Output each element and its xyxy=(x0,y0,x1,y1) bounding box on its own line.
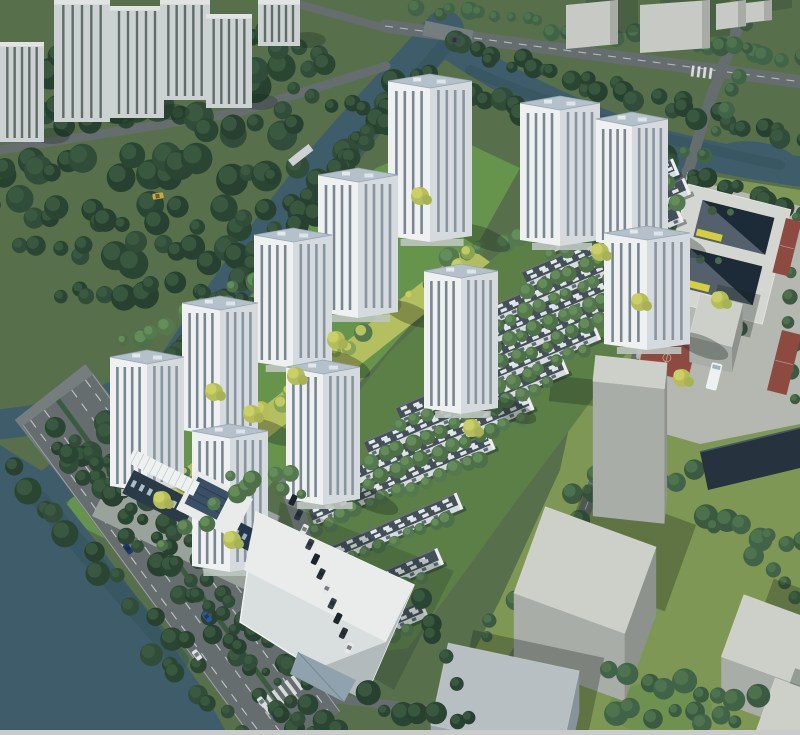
tree-highlight xyxy=(719,103,729,113)
tree-highlight xyxy=(483,615,491,623)
tree-highlight xyxy=(26,157,43,174)
roof-structure xyxy=(329,366,338,370)
tree-highlight xyxy=(462,246,470,254)
tree-highlight xyxy=(302,62,312,72)
tree-highlight xyxy=(269,468,278,477)
tower-windows xyxy=(551,113,554,238)
tree-highlight xyxy=(335,508,345,518)
context-tower-windows xyxy=(175,5,177,96)
tree-highlight xyxy=(379,706,386,713)
tree-highlight xyxy=(27,237,39,249)
tree-highlight xyxy=(229,625,236,632)
tree-highlight xyxy=(578,282,585,289)
tower-windows xyxy=(680,242,683,340)
tree-highlight xyxy=(680,147,686,153)
tree-highlight xyxy=(621,699,633,711)
tree-highlight xyxy=(219,166,237,184)
tower-windows xyxy=(341,185,344,310)
tower-windows xyxy=(527,113,530,238)
yellow-tree-cluster xyxy=(254,413,264,423)
tree-highlight xyxy=(355,325,366,336)
tower-windows xyxy=(575,112,578,236)
tree-highlight xyxy=(498,419,505,426)
yellow-tree-cluster xyxy=(234,539,244,549)
yellow-tree-cluster xyxy=(722,299,732,309)
tower-windows xyxy=(116,367,119,484)
tree-highlight xyxy=(435,426,443,434)
tower-windows xyxy=(475,280,478,404)
tower-windows xyxy=(624,129,627,240)
roof-structure xyxy=(544,100,552,104)
tree-highlight xyxy=(579,345,587,353)
tower-windows xyxy=(365,184,368,308)
context-tower-roof xyxy=(258,0,300,5)
tree-highlight xyxy=(757,120,768,131)
tower-windows xyxy=(131,367,134,484)
roof-structure xyxy=(618,116,626,120)
tree-highlight xyxy=(775,54,783,62)
tower-windows xyxy=(412,91,415,234)
tree-highlight xyxy=(299,696,311,708)
tree-highlight xyxy=(527,321,536,330)
roof-structure xyxy=(364,174,373,178)
tower-windows xyxy=(616,129,619,240)
context-tower-windows xyxy=(184,5,186,96)
tower-windows xyxy=(602,129,605,240)
roof-structure xyxy=(308,364,316,368)
roof-structure xyxy=(638,118,647,122)
tree-highlight xyxy=(126,503,134,511)
yellow-tree-highlight xyxy=(224,532,235,543)
tower-windows xyxy=(404,91,407,234)
tree-highlight xyxy=(666,104,675,113)
tree-highlight xyxy=(473,6,480,13)
tree-highlight xyxy=(783,290,792,299)
tree-highlight xyxy=(138,162,156,180)
tree-highlight xyxy=(113,286,128,301)
tree-highlight xyxy=(717,511,730,524)
tower-windows xyxy=(175,366,178,482)
tower-windows xyxy=(672,242,675,340)
yellow-tree-cluster xyxy=(602,251,612,261)
tree-highlight xyxy=(103,457,110,464)
tower-windows xyxy=(124,367,127,484)
tree-highlight xyxy=(314,711,327,724)
tower-face-left xyxy=(182,303,220,436)
roof-structure xyxy=(132,354,140,358)
tree-highlight xyxy=(791,395,797,401)
tower-windows xyxy=(226,312,229,426)
tower-windows xyxy=(438,281,441,406)
tree-highlight xyxy=(477,93,487,103)
tree-highlight xyxy=(380,446,390,456)
tower-windows xyxy=(645,128,648,238)
tower-windows xyxy=(437,90,440,232)
tree-highlight xyxy=(200,696,210,706)
tower-windows xyxy=(660,128,663,238)
tree-highlight xyxy=(712,127,718,133)
context-tower-windows xyxy=(28,47,30,138)
tree-highlight xyxy=(390,537,397,544)
tree-highlight xyxy=(162,629,176,643)
tower-windows xyxy=(489,280,492,404)
tree-highlight xyxy=(694,715,705,726)
tower-windows xyxy=(307,244,310,358)
roof-structure xyxy=(566,102,575,106)
yellow-tree-highlight xyxy=(244,406,255,417)
tree-highlight xyxy=(549,293,556,300)
roof-structure xyxy=(630,230,638,234)
tree-highlight xyxy=(618,664,631,677)
tree-highlight xyxy=(507,62,514,69)
tree-highlight xyxy=(262,668,267,673)
tree-highlight xyxy=(98,423,111,436)
tree-highlight xyxy=(668,474,679,485)
tree-highlight xyxy=(525,60,537,72)
tree-highlight xyxy=(686,461,698,473)
tree-highlight xyxy=(652,90,661,99)
tree-highlight xyxy=(301,189,312,200)
yellow-tree-cluster xyxy=(298,375,308,385)
tree-highlight xyxy=(551,270,560,279)
tree-highlight xyxy=(645,710,656,721)
tree-highlight xyxy=(463,712,471,720)
tree-highlight xyxy=(559,310,567,318)
tree-highlight xyxy=(315,55,328,68)
tree-highlight xyxy=(390,442,399,451)
tree-highlight xyxy=(120,251,138,269)
tree-highlight xyxy=(171,587,182,598)
tree-highlight xyxy=(589,83,601,95)
tower-face-left xyxy=(254,235,293,368)
tower-windows xyxy=(609,129,612,240)
tree-highlight xyxy=(485,424,494,433)
yellow-tree-cluster xyxy=(338,339,348,349)
tower-windows xyxy=(654,242,657,340)
tower-windows xyxy=(611,243,614,342)
tree-highlight xyxy=(675,99,686,110)
tower-windows xyxy=(268,245,271,360)
tree-highlight xyxy=(588,277,595,284)
tree-highlight xyxy=(152,532,159,539)
tree-highlight xyxy=(274,707,284,717)
tree-highlight xyxy=(203,601,211,609)
tree-highlight xyxy=(351,132,359,140)
tree-highlight xyxy=(409,1,419,11)
tree-highlight xyxy=(359,136,369,146)
car-glass xyxy=(452,37,457,42)
tree-highlight xyxy=(538,279,547,288)
tree-highlight xyxy=(361,125,370,134)
context-tower-windows xyxy=(118,11,120,114)
tree-highlight xyxy=(60,445,72,457)
roof-structure xyxy=(153,356,162,360)
tree-highlight xyxy=(70,146,87,163)
tree-highlight xyxy=(185,575,193,583)
tree-highlight xyxy=(406,483,414,491)
yellow-tree-highlight xyxy=(464,420,475,431)
tree-highlight xyxy=(517,331,524,338)
tree-highlight xyxy=(735,122,745,132)
tree-highlight xyxy=(530,385,537,392)
context-tower-windows xyxy=(192,5,194,96)
yellow-tree-highlight xyxy=(712,292,723,303)
tree-highlight xyxy=(583,298,592,307)
context-tower-windows xyxy=(278,5,280,42)
yellow-tree-cluster xyxy=(216,391,226,401)
roof-structure xyxy=(215,428,223,432)
tree-highlight xyxy=(156,236,167,247)
context-tower-windows xyxy=(200,5,202,96)
context-tower-roof xyxy=(0,42,44,47)
tree-highlight xyxy=(364,479,371,486)
tree-highlight xyxy=(569,306,578,315)
tree-highlight xyxy=(440,249,452,261)
tree-highlight xyxy=(726,84,734,92)
tree-highlight xyxy=(248,116,258,126)
tree-highlight xyxy=(90,457,99,466)
tree-highlight xyxy=(440,650,448,658)
tree-highlight xyxy=(142,645,155,658)
tree-highlight xyxy=(771,129,783,141)
context-tower-windows xyxy=(235,19,237,104)
context-tower-windows xyxy=(243,19,245,104)
tower-windows xyxy=(420,91,423,234)
tree-highlight xyxy=(543,342,550,349)
context-tower-windows xyxy=(154,11,156,114)
tree-highlight xyxy=(236,211,246,221)
tree-highlight xyxy=(462,457,471,466)
yellow-tree-cluster xyxy=(164,499,174,509)
tree-highlight xyxy=(512,350,521,359)
tree-highlight xyxy=(743,43,750,50)
tower-windows xyxy=(454,90,457,232)
tower-windows xyxy=(591,112,594,236)
tree-highlight xyxy=(440,513,450,523)
tower-windows xyxy=(445,281,448,406)
tree-highlight xyxy=(732,70,741,79)
tower-windows xyxy=(300,377,303,497)
context-tower-roof xyxy=(110,6,164,11)
tree-highlight xyxy=(268,223,277,232)
tower-windows xyxy=(535,113,538,238)
tree-highlight xyxy=(581,72,590,81)
tree-highlight xyxy=(190,589,199,598)
tower-face-right xyxy=(560,103,600,246)
tree-highlight xyxy=(561,289,568,296)
roof-structure xyxy=(226,302,235,306)
tree-highlight xyxy=(563,72,575,84)
tower-face-right xyxy=(647,233,690,350)
tree-highlight xyxy=(178,520,187,529)
tree-highlight xyxy=(190,686,201,697)
tree-highlight xyxy=(732,181,740,189)
tower-windows xyxy=(300,244,303,358)
roof-structure xyxy=(446,268,454,272)
tree-highlight xyxy=(414,452,424,462)
tree-highlight xyxy=(179,632,189,642)
tree-highlight xyxy=(97,287,107,297)
tree-highlight xyxy=(244,472,255,483)
context-tower-roof xyxy=(160,0,210,5)
tree-highlight xyxy=(306,90,315,99)
context-tower-windows xyxy=(90,5,92,118)
tree-highlight xyxy=(562,267,571,276)
tree-highlight xyxy=(518,304,527,313)
tree-highlight xyxy=(46,418,58,430)
tree-highlight xyxy=(614,83,626,95)
context-tower-windows xyxy=(220,19,222,104)
tree-highlight xyxy=(222,706,230,714)
tree-highlight xyxy=(724,690,737,703)
tree-highlight xyxy=(711,689,720,698)
tree-highlight xyxy=(526,348,533,355)
tree-highlight xyxy=(166,664,177,675)
tree-highlight xyxy=(460,437,468,445)
tree-highlight xyxy=(783,317,790,324)
context-tower-roof xyxy=(54,0,110,5)
tree-highlight xyxy=(483,54,492,63)
tree-highlight xyxy=(226,245,241,260)
tree-highlight xyxy=(699,150,705,156)
tree-highlight xyxy=(297,490,303,496)
context-slab-side xyxy=(610,0,618,45)
roof-structure xyxy=(205,300,213,304)
tree-highlight xyxy=(563,348,570,355)
tree-highlight xyxy=(593,313,603,323)
tower-windows xyxy=(196,313,199,428)
tower-face-right xyxy=(461,271,498,414)
tree-highlight xyxy=(596,295,605,304)
tree-highlight xyxy=(232,640,241,649)
tree-highlight xyxy=(407,436,417,446)
image-bottom-edge xyxy=(0,730,800,735)
tree-highlight xyxy=(84,447,93,456)
tower-windows xyxy=(663,242,666,340)
tower-windows xyxy=(276,245,279,360)
roof-structure xyxy=(236,430,245,434)
tower-windows xyxy=(452,281,455,406)
context-slab-side xyxy=(702,0,710,49)
tower-windows xyxy=(234,312,237,426)
tree-highlight xyxy=(288,83,295,90)
context-tower-windows xyxy=(167,5,169,96)
tree-highlight xyxy=(421,431,430,440)
tower-windows xyxy=(373,184,376,308)
tower-windows xyxy=(637,243,640,342)
tree-highlight xyxy=(601,662,611,672)
tree-highlight xyxy=(364,455,373,464)
context-tower-roof xyxy=(206,14,252,19)
context-tower-windows xyxy=(145,11,147,114)
tree-highlight xyxy=(490,12,496,18)
tower-face-left xyxy=(596,119,632,248)
car-glass xyxy=(155,194,160,199)
tree-highlight xyxy=(767,563,776,572)
tower-windows xyxy=(307,377,310,497)
tree-highlight xyxy=(451,678,459,686)
context-tower-windows xyxy=(81,5,83,118)
tree-highlight xyxy=(25,209,37,221)
tree-highlight xyxy=(265,169,274,178)
tower-windows xyxy=(462,90,465,232)
tree-highlight xyxy=(109,165,126,182)
tree-highlight xyxy=(86,543,98,555)
tree-highlight xyxy=(227,281,234,288)
tree-highlight xyxy=(507,13,513,19)
tree-highlight xyxy=(168,197,181,210)
tree-highlight xyxy=(524,13,531,20)
tree-highlight xyxy=(127,232,140,245)
tree-highlight xyxy=(404,528,411,535)
context-tower-windows xyxy=(212,19,214,104)
context-slab-side xyxy=(764,0,772,21)
tree-highlight xyxy=(118,336,124,342)
context-tower-windows xyxy=(62,5,64,118)
tower-face-right xyxy=(358,175,398,318)
context-tower-windows xyxy=(292,5,294,42)
tree-highlight xyxy=(244,655,253,664)
tower-windows xyxy=(652,128,655,238)
tree-highlight xyxy=(713,707,724,718)
tree-highlight xyxy=(158,319,168,329)
roof-structure xyxy=(467,270,476,274)
yellow-tree-highlight xyxy=(154,492,165,503)
tower-windows xyxy=(284,245,287,360)
tree-highlight xyxy=(208,498,216,506)
tree-highlight xyxy=(523,369,532,378)
tree-highlight xyxy=(406,291,412,297)
tower-windows xyxy=(629,243,632,342)
context-tower-windows xyxy=(71,5,73,118)
tree-highlight xyxy=(54,242,63,251)
tree-highlight xyxy=(451,715,460,724)
tree-highlight xyxy=(401,457,409,465)
yellow-tree-highlight xyxy=(674,370,685,381)
tree-highlight xyxy=(76,237,86,247)
tree-highlight xyxy=(274,678,279,683)
tree-highlight xyxy=(105,479,110,484)
tree-highlight xyxy=(223,596,231,604)
tree-highlight xyxy=(183,145,201,163)
tree-highlight xyxy=(292,713,301,722)
tree-highlight xyxy=(434,469,442,477)
tree-highlight xyxy=(793,213,798,218)
block-face xyxy=(593,381,665,524)
tree-highlight xyxy=(199,252,213,266)
tree-highlight xyxy=(507,375,516,384)
yellow-tree-highlight xyxy=(592,244,603,255)
tree-highlight xyxy=(534,300,542,308)
yellow-tree-highlight xyxy=(288,368,299,379)
tree-highlight xyxy=(46,197,60,211)
tree-highlight xyxy=(358,682,373,697)
tower-face-left xyxy=(424,271,461,414)
tree-highlight xyxy=(670,196,680,206)
tower-windows xyxy=(482,280,485,404)
tower-windows xyxy=(446,90,449,232)
tree-highlight xyxy=(191,220,200,229)
tree-highlight xyxy=(415,524,422,531)
tower-windows xyxy=(638,128,641,238)
tree-highlight xyxy=(606,703,620,717)
tower-windows xyxy=(261,245,264,360)
tower-windows xyxy=(211,313,214,428)
tree-highlight xyxy=(462,3,473,14)
yellow-tree-highlight xyxy=(412,188,423,199)
roof-structure xyxy=(437,80,446,84)
tree-highlight xyxy=(111,569,119,577)
